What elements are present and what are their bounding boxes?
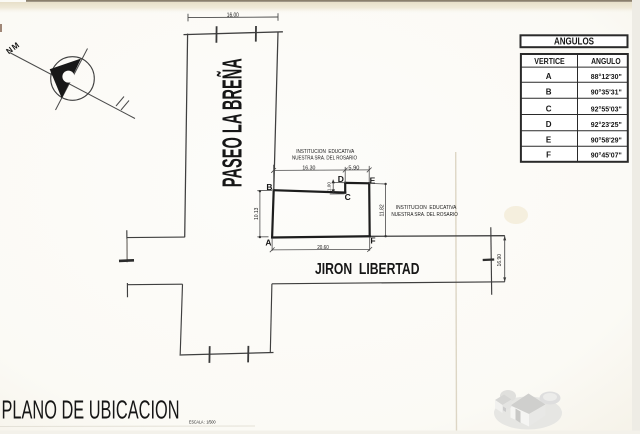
svg-text:E: E [546,135,552,144]
svg-text:16.00: 16.00 [227,13,240,19]
svg-text:INSTITUCION EDUCATIVA: INSTITUCION EDUCATIVA [296,149,354,155]
svg-text:JIRON LIBERTAD: JIRON LIBERTAD [315,261,420,278]
svg-text:90°35'31": 90°35'31" [591,89,622,97]
svg-text:C: C [345,192,351,202]
svg-text:ANGULOS: ANGULOS [554,37,594,48]
svg-text:92°55'03": 92°55'03" [591,105,622,113]
svg-text:VERTICE: VERTICE [534,57,565,66]
svg-text:NUESTRA SRA. DEL ROSARIO: NUESTRA SRA. DEL ROSARIO [391,212,458,218]
svg-text:PLANO DE UBICACION: PLANO DE UBICACION [2,395,180,425]
svg-text:ANGULO: ANGULO [591,57,621,66]
svg-text:20.60: 20.60 [317,245,329,251]
svg-text:ESCALA : 1/500: ESCALA : 1/500 [189,420,216,425]
svg-text:90°45'07": 90°45'07" [591,152,622,160]
svg-text:A: A [546,72,552,81]
svg-text:92°23'25": 92°23'25" [591,121,622,129]
svg-text:NUESTRA SRA. DEL ROSARIO: NUESTRA SRA. DEL ROSARIO [292,156,357,162]
svg-text:16.90: 16.90 [497,254,503,267]
svg-text:D: D [546,120,552,129]
svg-text:PASEO LA BREÑA: PASEO LA BREÑA [216,58,247,187]
svg-text:90°58'29": 90°58'29" [591,136,622,144]
svg-text:5.90: 5.90 [348,165,359,171]
svg-text:C: C [546,104,552,113]
svg-text:F: F [546,151,551,160]
svg-text:F: F [370,236,375,246]
svg-text:INSTITUCION EDUCATIVA: INSTITUCION EDUCATIVA [396,205,457,211]
svg-text:88°12'30": 88°12'30" [591,73,622,81]
svg-text:1.00: 1.00 [326,182,331,191]
svg-text:10.13: 10.13 [254,207,260,220]
svg-text:A: A [265,237,271,247]
svg-text:16.30: 16.30 [302,166,315,172]
svg-text:11.82: 11.82 [379,204,385,216]
svg-text:B: B [546,88,552,97]
